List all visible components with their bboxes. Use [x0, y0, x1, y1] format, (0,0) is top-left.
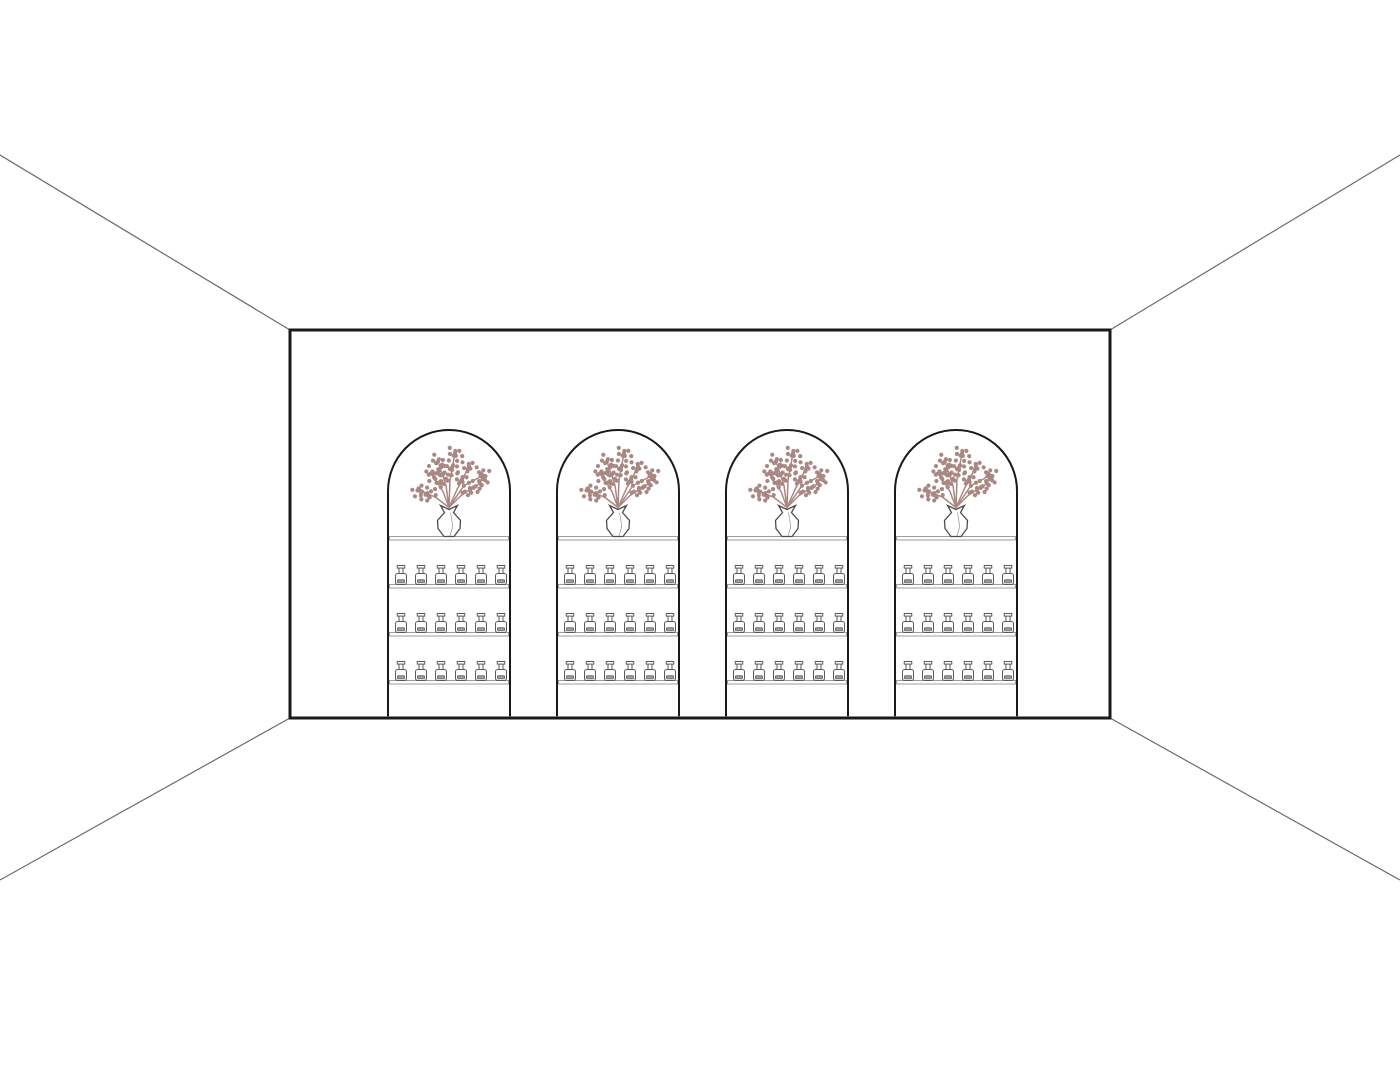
flower-blossom — [765, 464, 769, 468]
bottle-lip — [795, 566, 803, 569]
niche-3 — [726, 430, 848, 716]
flower-blossom — [805, 464, 809, 468]
bottle — [963, 566, 974, 585]
flower-blossom — [813, 490, 817, 494]
bottle-label — [397, 628, 404, 631]
bottle-lip — [755, 614, 763, 617]
flower-blossom — [624, 471, 628, 475]
bottle — [834, 662, 845, 681]
flower-blossom — [481, 468, 485, 472]
bottle-neck — [986, 664, 990, 670]
flower-blossom — [424, 469, 428, 473]
bottle-neck — [588, 664, 592, 670]
bottle-shelf — [897, 633, 1016, 637]
bottle-neck — [648, 568, 652, 574]
bottle-neck — [906, 616, 910, 622]
bottle-lip — [944, 614, 952, 617]
bottle-label — [646, 676, 653, 679]
bottle-label — [775, 580, 782, 583]
bottle-label — [835, 580, 842, 583]
flower-blossom — [419, 497, 423, 501]
bottle — [1003, 566, 1014, 585]
bottle-shelf — [897, 585, 1016, 589]
bottle — [754, 566, 765, 585]
bottle-neck — [439, 568, 443, 574]
bottle-shelf — [728, 633, 847, 637]
flower-blossom — [600, 459, 604, 463]
bottle — [416, 566, 427, 585]
flower-blossom — [439, 485, 443, 489]
bottle-label — [984, 580, 991, 583]
bottle — [416, 614, 427, 633]
bottle-neck — [628, 616, 632, 622]
bottle-neck — [926, 568, 930, 574]
bottle-neck — [439, 616, 443, 622]
bottle-neck — [906, 664, 910, 670]
bottle-shelf — [559, 681, 678, 685]
flower-blossom — [579, 488, 583, 492]
flower-blossom — [445, 464, 449, 468]
bottle — [734, 614, 745, 633]
bottle — [565, 662, 576, 681]
bottle-lip — [457, 614, 465, 617]
flower-blossom — [646, 470, 650, 474]
bottle — [625, 566, 636, 585]
bottle — [774, 566, 785, 585]
bottle — [436, 614, 447, 633]
flower-blossom — [926, 490, 930, 494]
flower-blossom — [962, 477, 966, 481]
flower-blossom — [948, 472, 952, 476]
bottle-label — [984, 676, 991, 679]
flower-blossom — [940, 477, 944, 481]
flower-blossom — [433, 487, 437, 491]
flower-blossom — [483, 478, 487, 482]
bottle — [456, 614, 467, 633]
bottle-lip — [755, 662, 763, 665]
flower-blossom — [460, 491, 464, 495]
bottle-lip — [457, 566, 465, 569]
bottle-label — [944, 580, 951, 583]
bottle-label — [755, 628, 762, 631]
flower-blossom — [410, 488, 414, 492]
flower-blossom — [610, 472, 614, 476]
bottle-label — [626, 628, 633, 631]
bottle-neck — [966, 568, 970, 574]
bottle — [605, 662, 616, 681]
bottle-neck — [459, 616, 463, 622]
flower-blossom — [446, 479, 450, 483]
flower-blossom — [633, 475, 637, 479]
flower-blossom — [455, 477, 459, 481]
bottle-lip — [646, 614, 654, 617]
bottle — [496, 566, 507, 585]
flower-blossom — [793, 464, 797, 468]
flower-blossom — [774, 470, 778, 474]
flower-blossom — [598, 489, 602, 493]
flower-blossom — [601, 453, 605, 457]
flower-blossom — [795, 449, 799, 453]
flower-blossom — [960, 451, 964, 455]
flower-blossom — [765, 479, 769, 483]
bottle — [903, 566, 914, 585]
flower-blossom — [971, 475, 975, 479]
flower-blossom — [464, 475, 468, 479]
flower-blossom — [779, 458, 783, 462]
flower-blossom — [962, 471, 966, 475]
bottle-neck — [399, 616, 403, 622]
flower-blossom — [757, 497, 761, 501]
flower-blossom — [629, 491, 633, 495]
bottle-shelf — [559, 633, 678, 637]
bottle-label — [1004, 676, 1011, 679]
bottle — [665, 566, 676, 585]
flower-blossom — [631, 466, 635, 470]
bottle-lip — [984, 614, 992, 617]
bottle-lip — [775, 566, 783, 569]
bottle-neck — [459, 568, 463, 574]
bottle-label — [477, 628, 484, 631]
bottle — [923, 614, 934, 633]
flower-blossom — [957, 465, 961, 469]
flower-blossom — [624, 477, 628, 481]
bottle-lip — [964, 566, 972, 569]
bottle — [774, 614, 785, 633]
bottle-lip — [904, 566, 912, 569]
flower-blossom — [629, 477, 633, 481]
flower-blossom — [979, 485, 983, 489]
bottle-lip — [457, 662, 465, 665]
flower-blossom — [455, 471, 459, 475]
bottle-neck — [648, 616, 652, 622]
flower-blossom — [436, 470, 440, 474]
flower-blossom — [634, 469, 638, 473]
bottle-neck — [986, 616, 990, 622]
bottle-neck — [817, 616, 821, 622]
bottle-label — [815, 676, 822, 679]
bottle-lip — [755, 566, 763, 569]
bottle-label — [457, 580, 464, 583]
bottle-lip — [566, 662, 574, 665]
flower-blossom — [926, 497, 930, 501]
flower-blossom — [917, 488, 921, 492]
bottle — [456, 566, 467, 585]
bottle-lip — [586, 566, 594, 569]
flower-blossom — [798, 491, 802, 495]
bottle — [565, 566, 576, 585]
bottle-label — [626, 580, 633, 583]
bottle-label — [755, 676, 762, 679]
niche-1 — [388, 430, 510, 716]
bottle-shelf — [390, 585, 509, 589]
flower-blossom — [936, 471, 940, 475]
flower-blossom — [934, 464, 938, 468]
bottle — [625, 614, 636, 633]
flower-blossom — [941, 493, 945, 497]
bottle — [814, 566, 825, 585]
bottle — [585, 614, 596, 633]
bottle-lip — [924, 566, 932, 569]
bottle — [665, 662, 676, 681]
flower-blossom — [588, 484, 592, 488]
flower-blossom — [413, 494, 417, 498]
bottle-lip — [815, 614, 823, 617]
flower-blossom — [982, 465, 986, 469]
bottle-lip — [1004, 566, 1012, 569]
bottle-label — [497, 580, 504, 583]
bottle-neck — [737, 616, 741, 622]
bottle-neck — [648, 664, 652, 670]
niche-4 — [895, 430, 1017, 716]
bottle-label — [795, 676, 802, 679]
bottle-neck — [797, 568, 801, 574]
bottle — [834, 566, 845, 585]
flower-blossom — [441, 458, 445, 462]
bottle — [794, 662, 805, 681]
flower-blossom — [432, 453, 436, 457]
bottle-lip — [735, 614, 743, 617]
bottle-lip — [477, 614, 485, 617]
bottle-neck — [588, 616, 592, 622]
flower-blossom — [815, 480, 819, 484]
bottle-lip — [626, 566, 634, 569]
bottle-label — [666, 628, 673, 631]
bottle-label — [775, 676, 782, 679]
bottle-neck — [668, 568, 672, 574]
bottle-lip — [735, 566, 743, 569]
bottle-lip — [924, 614, 932, 617]
flower-blossom — [932, 486, 936, 490]
bottle-neck — [568, 568, 572, 574]
flower-blossom — [933, 493, 937, 497]
bottle-lip — [964, 662, 972, 665]
bottle — [396, 614, 407, 633]
bottle-label — [417, 580, 424, 583]
bottle-neck — [479, 568, 483, 574]
bottle-neck — [966, 664, 970, 670]
flower-blossom — [447, 458, 451, 462]
bottle-neck — [439, 664, 443, 670]
flower-blossom — [602, 477, 606, 481]
bottle — [496, 662, 507, 681]
bottle — [605, 614, 616, 633]
bottle — [814, 614, 825, 633]
flower-blossom — [457, 449, 461, 453]
flower-blossom — [978, 461, 982, 465]
bottle-label — [1004, 580, 1011, 583]
flower-blossom — [988, 468, 992, 472]
flower-blossom — [650, 468, 654, 472]
flower-blossom — [439, 480, 443, 484]
flower-blossom — [425, 498, 429, 502]
flower-blossom — [988, 473, 992, 477]
bottle-label — [904, 628, 911, 631]
flower-blossom — [955, 446, 959, 450]
bottle-neck — [757, 616, 761, 622]
flower-blossom — [481, 473, 485, 477]
flower-blossom — [777, 485, 781, 489]
bottle-neck — [419, 568, 423, 574]
flower-blossom — [787, 473, 791, 477]
flower-blossom — [465, 469, 469, 473]
bottle-label — [437, 580, 444, 583]
flower-blossom — [448, 452, 452, 456]
bottle-shelf — [897, 681, 1016, 685]
flower-blossom — [617, 452, 621, 456]
flower-blossom — [637, 488, 641, 492]
flower-blossom — [804, 493, 808, 497]
flower-blossom — [419, 484, 423, 488]
flower-blossom — [419, 490, 423, 494]
bottle-lip — [417, 662, 425, 665]
bottle-lip — [835, 662, 843, 665]
flower-blossom — [594, 486, 598, 490]
bottle-neck — [777, 664, 781, 670]
flower-blossom — [940, 487, 944, 491]
bottle-label — [835, 676, 842, 679]
flower-blossom — [946, 485, 950, 489]
flower-blossom — [441, 472, 445, 476]
bottle — [645, 662, 656, 681]
bottle-lip — [815, 662, 823, 665]
flower-blossom — [967, 491, 971, 495]
bottle-lip — [606, 662, 614, 665]
bottle-neck — [399, 664, 403, 670]
flower-blossom — [791, 451, 795, 455]
flower-blossom — [477, 470, 481, 474]
bottle-lip — [924, 662, 932, 665]
bottle-label — [646, 580, 653, 583]
bottle — [436, 662, 447, 681]
bottle-label — [924, 628, 931, 631]
flower-blossom — [825, 469, 829, 473]
bottle-label — [586, 628, 593, 631]
bottle-neck — [837, 568, 841, 574]
flower-blossom — [984, 470, 988, 474]
flower-blossom — [931, 469, 935, 473]
bottle — [754, 662, 765, 681]
bottle-lip — [904, 662, 912, 665]
flower-blossom — [616, 458, 620, 462]
bottle-neck — [837, 616, 841, 622]
flower-blossom — [774, 459, 778, 463]
bottle — [436, 566, 447, 585]
flower-blossom — [618, 473, 622, 477]
flower-blossom — [763, 498, 767, 502]
bottle-shelf — [559, 585, 678, 589]
bottle-label — [904, 580, 911, 583]
flower-blossom — [967, 460, 971, 464]
bottle-lip — [835, 566, 843, 569]
flower-blossom — [455, 459, 459, 463]
bottle-lip — [666, 662, 674, 665]
bottle — [476, 566, 487, 585]
bottle-neck — [837, 664, 841, 670]
bottle — [963, 662, 974, 681]
flower-blossom — [793, 459, 797, 463]
flower-blossom — [767, 471, 771, 475]
bottle-label — [735, 628, 742, 631]
flower-blossom — [429, 471, 433, 475]
flower-blossom — [819, 473, 823, 477]
bottle-neck — [737, 664, 741, 670]
bottle-neck — [608, 568, 612, 574]
flower-blossom — [785, 458, 789, 462]
flower-blossom — [762, 469, 766, 473]
flower-blossom — [751, 494, 755, 498]
flower-blossom — [602, 487, 606, 491]
flower-blossom — [609, 465, 613, 469]
flower-blossom — [641, 485, 645, 489]
bottle — [983, 662, 994, 681]
flower-blossom — [969, 466, 973, 470]
flower-blossom — [629, 454, 633, 458]
bottle-neck — [668, 664, 672, 670]
flower-blossom — [984, 480, 988, 484]
bottle-neck — [419, 616, 423, 622]
flower-blossom — [748, 488, 752, 492]
flower-blossom — [795, 481, 799, 485]
bottle-label — [497, 676, 504, 679]
bottle-label — [437, 628, 444, 631]
bottle-label — [417, 628, 424, 631]
flower-blossom — [772, 493, 776, 497]
flower-blossom — [994, 469, 998, 473]
bottle-neck — [737, 568, 741, 574]
bottle-label — [984, 628, 991, 631]
bottle-lip — [815, 566, 823, 569]
bottle-lip — [417, 566, 425, 569]
bottle-lip — [606, 614, 614, 617]
bottle-lip — [1004, 662, 1012, 665]
bottle-label — [566, 676, 573, 679]
flower-blossom — [475, 490, 479, 494]
bottle — [1003, 662, 1014, 681]
flower-blossom — [644, 465, 648, 469]
bottle-neck — [986, 568, 990, 574]
bottle-shelf — [390, 633, 509, 637]
room-elevation-drawing — [0, 0, 1400, 1082]
bottle-lip — [964, 614, 972, 617]
bottle — [734, 566, 745, 585]
flower-blossom — [815, 470, 819, 474]
flower-blossom — [769, 459, 773, 463]
flower-blossom — [810, 485, 814, 489]
flower-blossom — [455, 464, 459, 468]
bottle — [983, 614, 994, 633]
bottle-lip — [666, 566, 674, 569]
bottle-label — [735, 580, 742, 583]
bottle-lip — [497, 614, 505, 617]
flower-blossom — [427, 479, 431, 483]
bottle — [476, 662, 487, 681]
bottle-lip — [477, 566, 485, 569]
bottle-neck — [608, 664, 612, 670]
flower-blossom — [436, 459, 440, 463]
flower-blossom — [449, 473, 453, 477]
flower-blossom — [582, 494, 586, 498]
flower-blossom — [798, 477, 802, 481]
bottle — [903, 614, 914, 633]
flower-blossom — [433, 477, 437, 481]
bottle-neck — [628, 568, 632, 574]
bottle — [456, 662, 467, 681]
bottle-neck — [946, 568, 950, 574]
bottle-label — [964, 628, 971, 631]
bottle-neck — [568, 616, 572, 622]
bottle-label — [586, 676, 593, 679]
bottle — [983, 566, 994, 585]
